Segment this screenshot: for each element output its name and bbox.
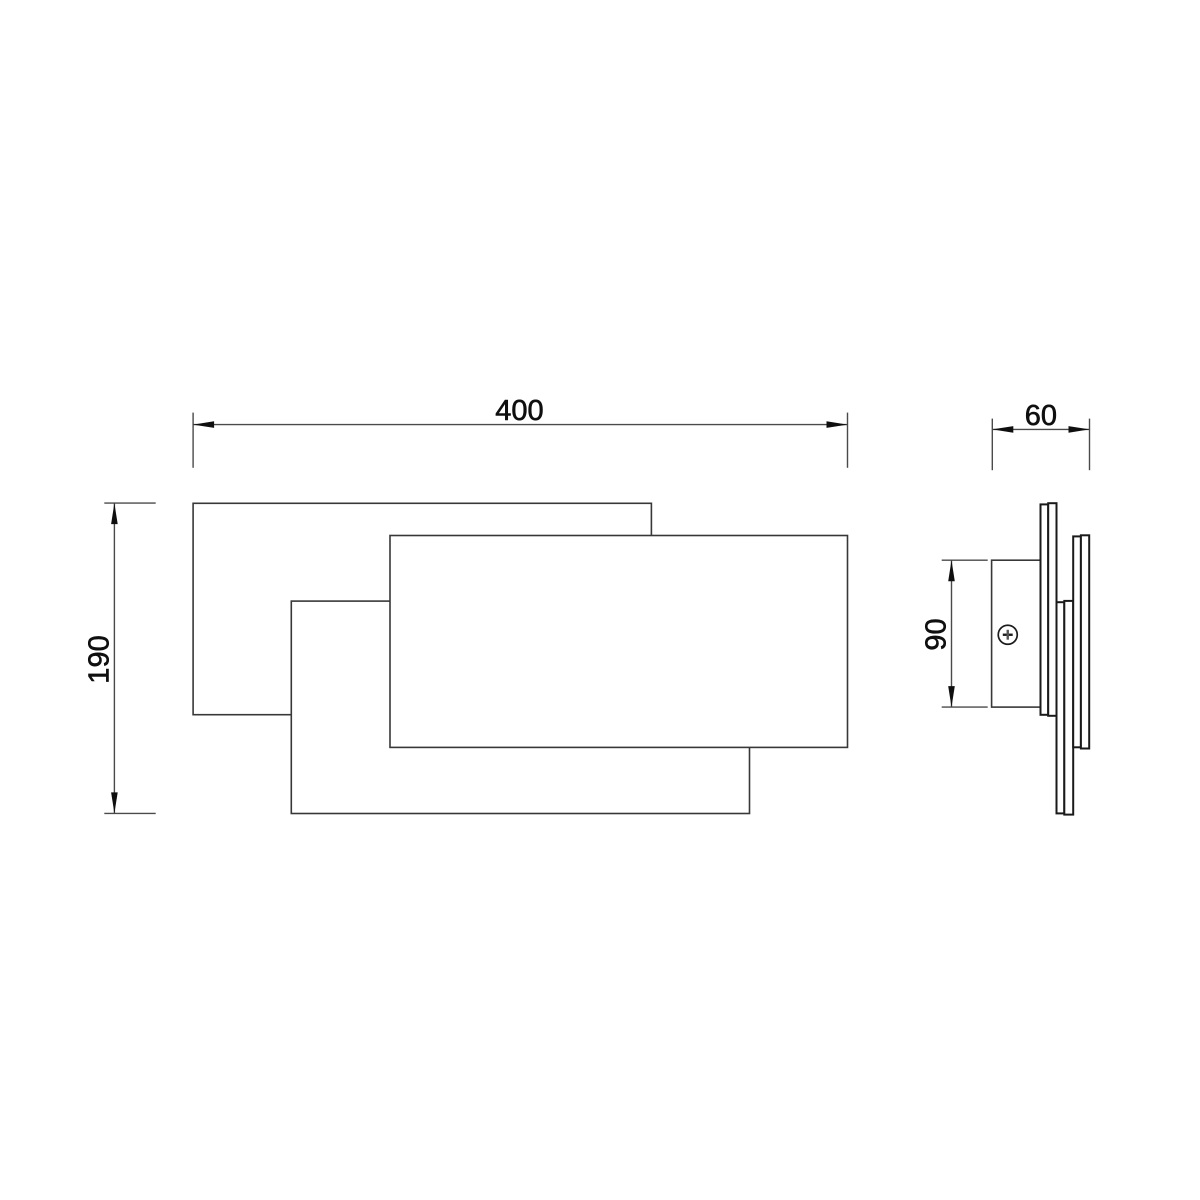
svg-text:190: 190 [84, 635, 116, 683]
svg-text:90: 90 [921, 618, 953, 650]
svg-text:60: 60 [1025, 400, 1057, 432]
svg-text:400: 400 [495, 395, 543, 427]
